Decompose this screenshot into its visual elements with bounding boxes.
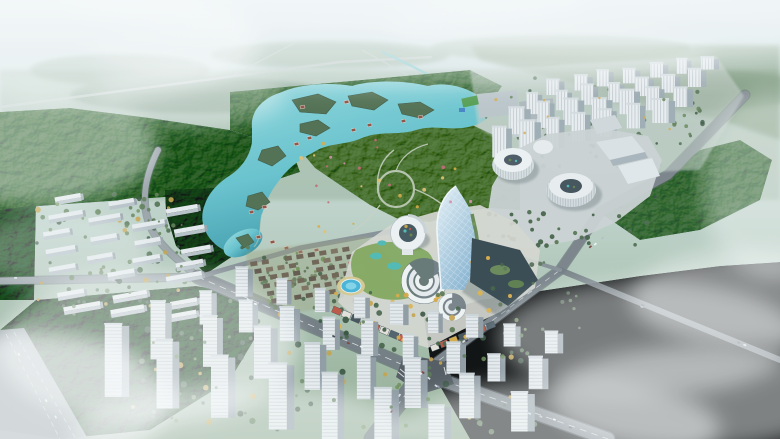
rendering-canvas	[0, 0, 780, 439]
aerial-city-rendering	[0, 0, 780, 439]
atmosphere	[0, 0, 780, 439]
color-grade	[0, 0, 780, 439]
